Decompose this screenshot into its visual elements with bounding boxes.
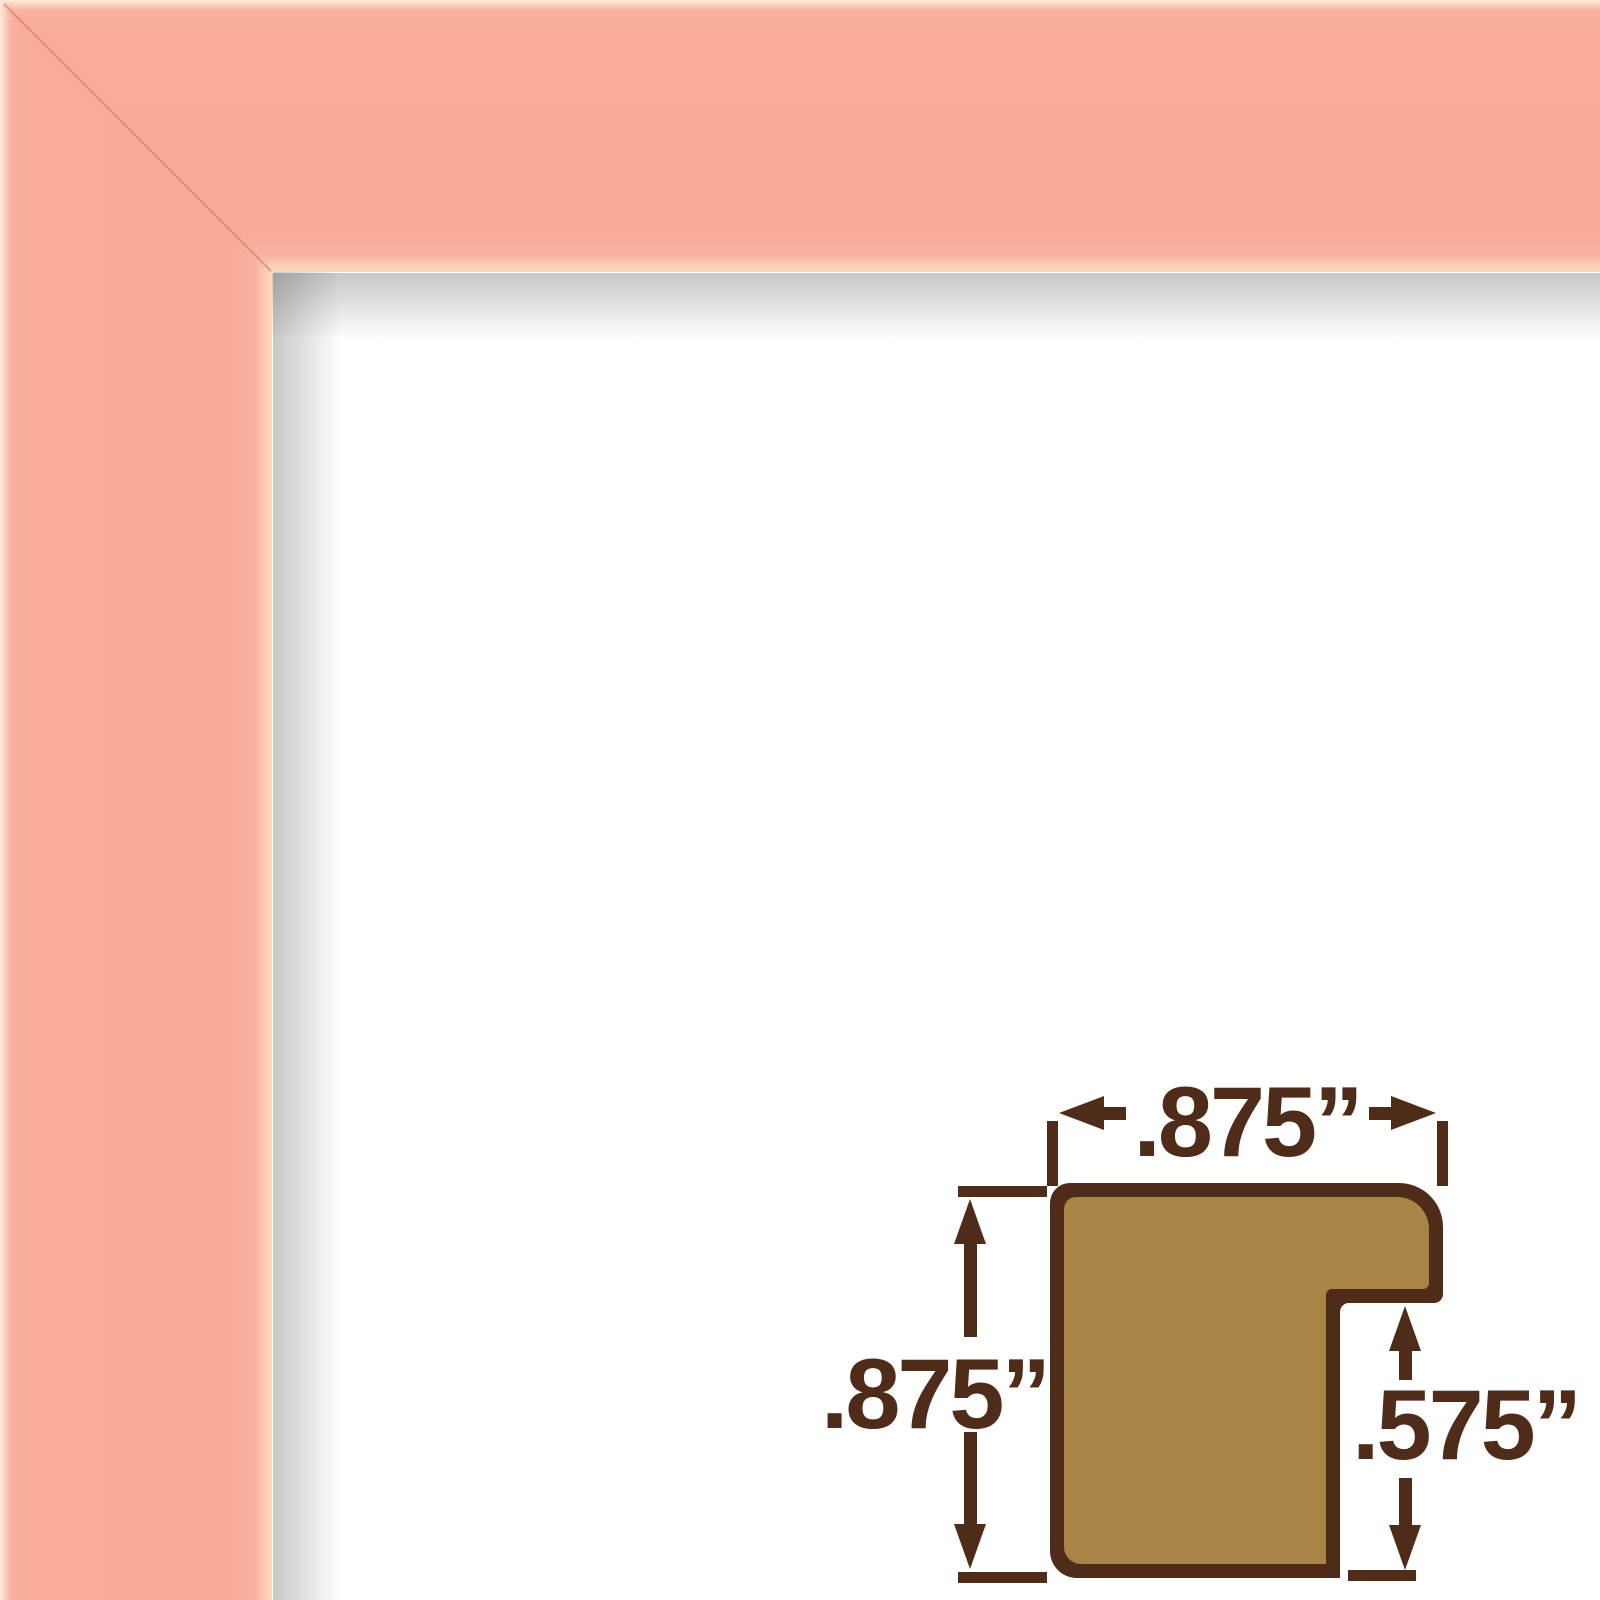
width-extension-tick-right (1437, 1121, 1448, 1186)
rabbet-arrow-down-icon (1389, 1525, 1421, 1570)
height-dimension-label: .875” (821, 1338, 1048, 1449)
width-extension-tick-left (1047, 1121, 1058, 1186)
product-image: .875” .875” .575” (0, 0, 1600, 1600)
dimension-rabbet: .575” (1348, 1306, 1579, 1581)
height-extension-tick-bottom (958, 1572, 1047, 1583)
miter-seam-line (4, 4, 271, 271)
height-arrow-down-icon (954, 1524, 986, 1569)
rabbet-extension-tick-bottom (1348, 1570, 1416, 1581)
rabbet-dimension-label: .575” (1352, 1369, 1579, 1480)
height-arrow-up-shaft (964, 1240, 977, 1337)
height-arrow-up-icon (954, 1199, 986, 1244)
rabbet-arrow-up-icon (1389, 1306, 1421, 1351)
width-arrow-left-icon (1059, 1096, 1104, 1130)
rabbet-arrow-down-shaft (1399, 1478, 1412, 1529)
height-extension-tick-top (958, 1186, 1047, 1197)
dimension-height: .875” (821, 1186, 1048, 1583)
width-arrow-left-shaft (1100, 1107, 1126, 1120)
width-arrow-right-icon (1391, 1096, 1436, 1130)
width-arrow-right-shaft (1369, 1107, 1395, 1120)
profile-dimension-diagram: .875” .875” .575” (0, 0, 1600, 1600)
dimension-width: .875” (1047, 1066, 1448, 1186)
width-dimension-label: .875” (1133, 1066, 1360, 1177)
